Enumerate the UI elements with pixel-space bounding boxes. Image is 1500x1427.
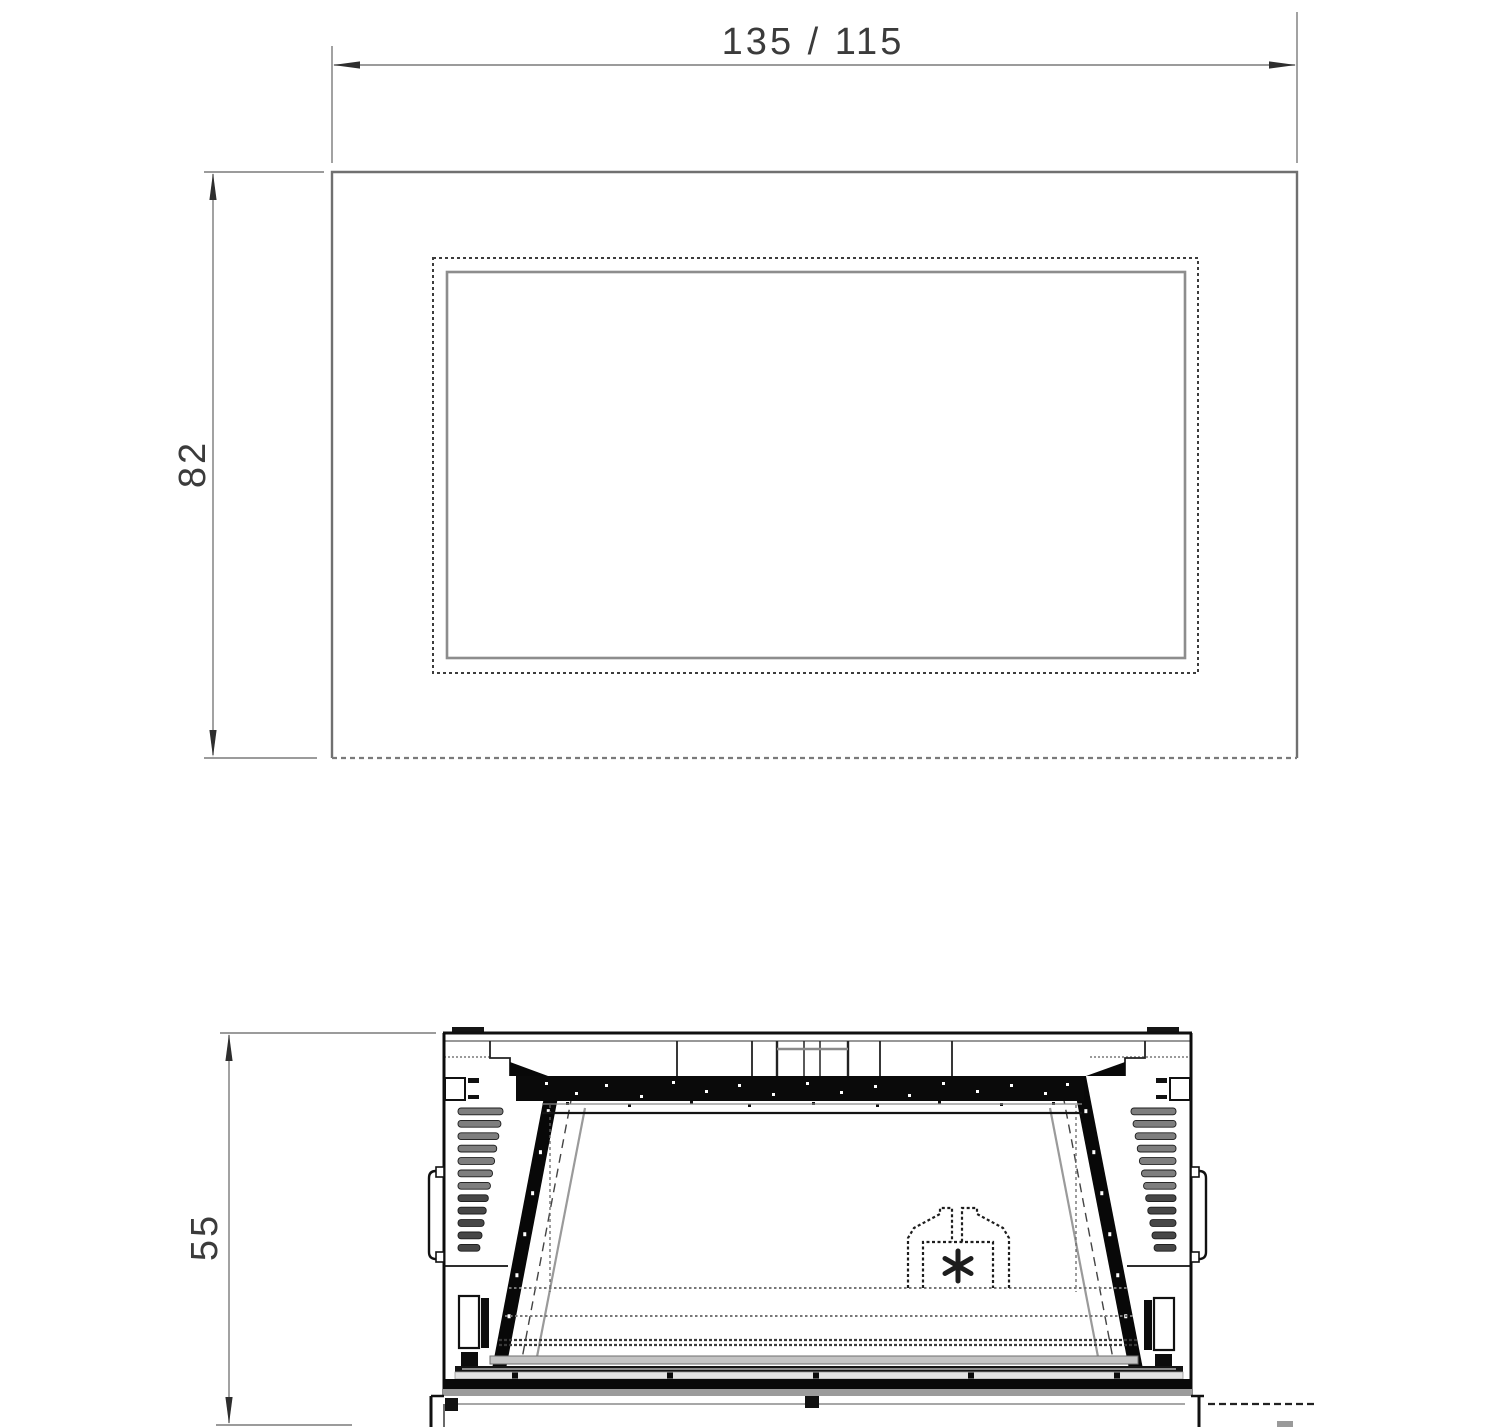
fastener-dot	[512, 1373, 518, 1379]
latch-plate-right	[1170, 1078, 1190, 1100]
speckle	[640, 1095, 643, 1098]
dim-height-label: 55	[184, 1213, 226, 1261]
dim-depth-label: 82	[172, 440, 214, 488]
vent-slat	[1137, 1145, 1176, 1152]
base-left-block	[445, 1398, 458, 1411]
base-front-band	[443, 1379, 1192, 1389]
arrowhead-right-icon	[1269, 61, 1296, 68]
pedestal-cutoff	[431, 1396, 1315, 1427]
vent-slat	[1148, 1207, 1176, 1214]
arrowhead-down-icon	[209, 730, 216, 757]
speckle	[1084, 1109, 1087, 1113]
vent-slat	[458, 1108, 503, 1115]
vent-slat	[458, 1182, 490, 1189]
speckle	[672, 1081, 675, 1084]
fastener-dot	[968, 1373, 974, 1379]
drawing-sheet: 135 / 115 82 55	[0, 0, 1500, 1427]
speckle	[605, 1084, 608, 1087]
speckle	[806, 1082, 809, 1085]
vent-slat	[1131, 1108, 1176, 1115]
vent-slat	[458, 1207, 486, 1214]
speckle	[1066, 1083, 1069, 1086]
arrowhead-up-icon	[225, 1034, 232, 1061]
fastener-dot	[813, 1373, 819, 1379]
plan-opening-dashed-rect	[433, 258, 1198, 673]
hearth-lines	[499, 1288, 1138, 1345]
arrowhead-down-icon	[225, 1397, 232, 1424]
vent-slat	[458, 1120, 501, 1127]
speckle	[738, 1084, 741, 1087]
asterisk-icon	[945, 1251, 971, 1281]
base-assembly	[443, 1356, 1192, 1411]
dimension-width: 135 / 115	[332, 12, 1297, 163]
vent-slat	[458, 1170, 493, 1177]
speckle	[1044, 1092, 1047, 1095]
latch-plate-left	[445, 1078, 465, 1100]
dimension-height: 55	[184, 1033, 436, 1425]
speckle	[874, 1085, 877, 1088]
vent-slat	[458, 1158, 495, 1165]
door-glass	[492, 1076, 1143, 1369]
speckle	[523, 1232, 526, 1236]
fastener-dot	[667, 1373, 673, 1379]
corner-wedge-right	[1086, 1062, 1125, 1076]
speckle	[840, 1091, 843, 1094]
speckle	[1092, 1150, 1095, 1154]
speckle	[575, 1092, 578, 1095]
speckle	[976, 1090, 979, 1093]
speckle	[1116, 1273, 1119, 1277]
insulation-band	[516, 1076, 1084, 1113]
flue-boxes	[677, 1041, 952, 1076]
slope-speckles	[508, 1109, 1128, 1318]
dim-width-label: 135 / 115	[722, 21, 905, 63]
vent-slat	[1139, 1158, 1176, 1165]
corner-wedge-left	[510, 1062, 548, 1076]
vent-slat	[1152, 1232, 1176, 1239]
handle-bar-left	[429, 1171, 444, 1259]
technical-drawing: 135 / 115 82 55	[0, 0, 1500, 1427]
vent-slats-right	[1131, 1108, 1176, 1251]
top-plate	[443, 1027, 1192, 1057]
vent-slat	[1144, 1182, 1176, 1189]
speckle	[1100, 1191, 1103, 1195]
vent-slat	[1133, 1120, 1176, 1127]
arrowhead-left-icon	[333, 61, 360, 68]
glass-slope-right	[1072, 1076, 1143, 1369]
speckle	[539, 1150, 542, 1154]
arrowhead-up-icon	[209, 173, 216, 200]
speckle	[1010, 1084, 1013, 1087]
panel-step-right	[1125, 1041, 1145, 1076]
vent-slat	[458, 1232, 482, 1239]
symbol-outline-right	[962, 1208, 1009, 1288]
vent-slat	[458, 1220, 484, 1227]
panel-step-left	[490, 1041, 510, 1076]
base-grate-band	[490, 1356, 1138, 1364]
speckle	[705, 1090, 708, 1093]
dimension-depth: 82	[172, 172, 324, 758]
glass-slope-left	[492, 1076, 562, 1369]
speckle	[515, 1273, 518, 1277]
speckle	[1108, 1232, 1111, 1236]
plan-glass-rect	[447, 272, 1185, 658]
handle-bar-right	[1191, 1171, 1206, 1259]
speckle	[942, 1082, 945, 1085]
vent-slat	[1135, 1133, 1176, 1140]
vent-slat	[1150, 1220, 1176, 1227]
symbol-outline-left	[908, 1208, 952, 1288]
speckle	[545, 1082, 548, 1085]
door-handle-left	[429, 1167, 444, 1262]
speckle	[772, 1093, 775, 1096]
plan-view	[332, 172, 1297, 758]
section-view	[429, 1027, 1315, 1427]
vent-slat	[458, 1133, 499, 1140]
vent-slat	[458, 1195, 488, 1202]
speckle	[908, 1094, 911, 1097]
vent-slat	[458, 1244, 480, 1251]
base-center-tab	[805, 1396, 819, 1408]
vent-slat	[1154, 1244, 1176, 1251]
combustion-air-symbol	[908, 1208, 1009, 1288]
door-handle-right	[1191, 1167, 1206, 1262]
vent-slat	[1142, 1170, 1177, 1177]
vent-slat	[458, 1145, 497, 1152]
base-lower-band	[443, 1389, 1192, 1396]
hinge-right	[1144, 1298, 1174, 1369]
vent-slat	[1146, 1195, 1176, 1202]
fastener-dot	[1114, 1373, 1120, 1379]
plan-outer-rect	[332, 172, 1297, 758]
speckle	[531, 1191, 534, 1195]
hinge-left	[459, 1296, 489, 1367]
vent-slats-left	[458, 1108, 503, 1251]
